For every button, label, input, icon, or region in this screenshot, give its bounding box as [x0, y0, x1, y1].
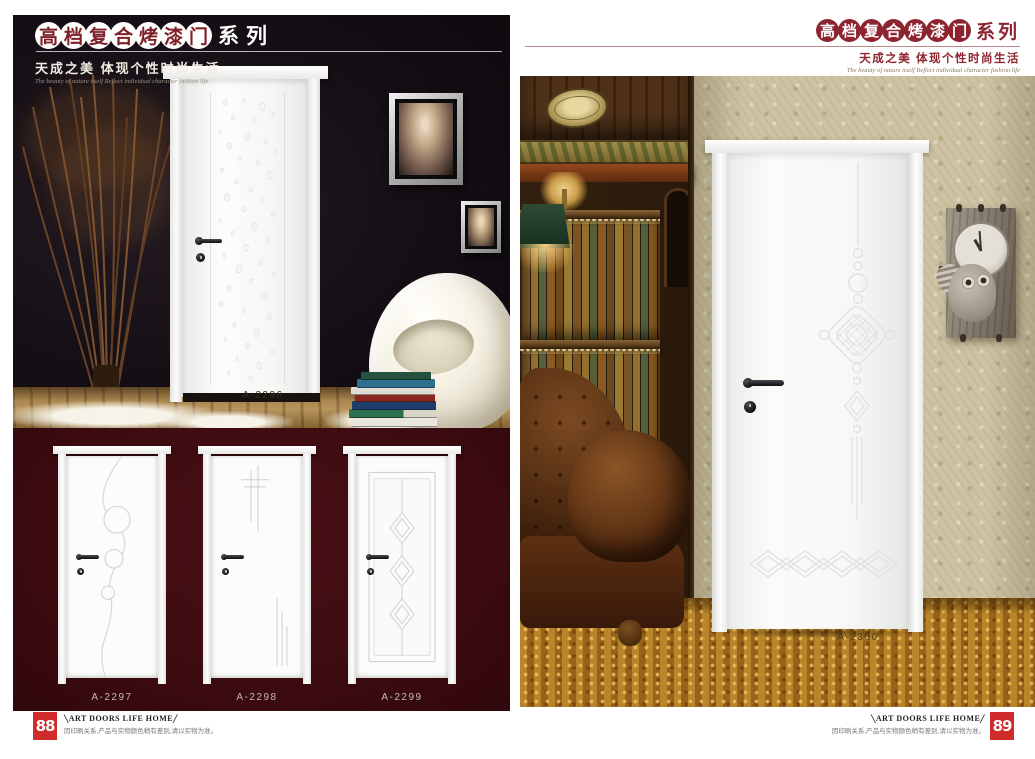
right-room-photo: A-2300 [520, 76, 1035, 707]
book [352, 401, 436, 410]
page-number-left: 88 [33, 712, 57, 740]
door-lock [744, 401, 756, 413]
door-lock [367, 568, 374, 575]
door-frame-jamb-right [303, 454, 311, 684]
door-design-a2300 [727, 153, 908, 629]
door-a2296 [182, 79, 308, 397]
right-series-title: 高 档 复 合 烤 漆 门 系列 [817, 17, 1020, 44]
door-frame-jamb-right [908, 153, 923, 632]
carved-frieze [520, 140, 694, 164]
door-design-a2296 [211, 93, 284, 383]
title-char-circle: 烤 [904, 19, 927, 42]
door-leaf [211, 456, 303, 678]
footer-right-text: ╲ART DOORS LIFE HOME╱ 因印刷关系,产品与实物颜色稍有差别,… [832, 714, 985, 735]
fur-rug [163, 411, 293, 428]
door-frame-jamb-left [170, 79, 182, 402]
book [361, 372, 431, 380]
series-tagline: 天成之美 体现个性时尚生活 [859, 50, 1020, 66]
book [349, 409, 437, 418]
door-design-a2297 [66, 456, 158, 678]
owl-figurine [948, 264, 996, 322]
door-handle-lever [224, 555, 244, 559]
door-handle-lever [79, 555, 99, 559]
dried-branches-decoration [15, 67, 183, 425]
brand-right-mark: ╱ [173, 715, 178, 723]
door-frame-jamb-left [712, 153, 727, 632]
title-char-circle: 复 [85, 22, 112, 49]
series-tagline-english: The beauty of nature itself Reflect indi… [847, 67, 1020, 74]
left-room-photo: 高 档 复 合 烤 漆 门 系列 天成之美 体现个性时尚生活 The beaut… [13, 15, 510, 428]
series-tagline: 天成之美 体现个性时尚生活 [35, 58, 274, 77]
door-lock [222, 568, 229, 575]
title-char-circle: 高 [35, 22, 62, 49]
clock-knob [956, 204, 962, 212]
door-frame-jamb-left [58, 454, 66, 684]
title-char-circle: 漆 [926, 19, 949, 42]
title-char-circle: 门 [185, 22, 212, 49]
door-carved-panel [210, 93, 285, 383]
title-char-circle: 合 [882, 19, 905, 42]
owl-eye [962, 276, 975, 289]
book-stack [349, 367, 441, 427]
showcase-door-a2299: A-2299 [348, 446, 456, 684]
title-char-circle: 合 [110, 22, 137, 49]
door-design-a2298 [211, 456, 303, 678]
owl-body [948, 264, 996, 322]
title-char-circle: 烤 [135, 22, 162, 49]
title-char-circle: 档 [60, 22, 87, 49]
owl-wall-clock [946, 208, 1016, 338]
page-number-right: 89 [990, 712, 1014, 740]
brand-name: ART DOORS LIFE HOME [69, 714, 173, 723]
armchair-foot [618, 620, 642, 646]
door-model-label: A-2298 [203, 692, 311, 703]
title-char-circle: 复 [860, 19, 883, 42]
door-frame-lintel [343, 446, 461, 454]
clock-knob [960, 334, 966, 342]
shelf-scallop-trim [520, 349, 660, 353]
title-char-circle: 档 [838, 19, 861, 42]
series-tagline-english: The beauty of nature itself Reflect indi… [35, 78, 274, 85]
showcase-door-a2298: A-2298 [203, 446, 311, 684]
book [351, 387, 434, 395]
print-disclaimer: 因印刷关系,产品与实物颜色稍有差别,请以实物为准。 [64, 725, 217, 735]
brand-right-mark: ╱ [980, 715, 985, 723]
left-series-header: 高 档 复 合 烤 漆 门 系列 天成之美 体现个性时尚生活 The beaut… [35, 20, 274, 85]
brand-line: ╲ART DOORS LIFE HOME╱ [64, 714, 217, 723]
door-frame-jamb-right [448, 454, 456, 684]
showcase-door-a2297: A-2297 [58, 446, 166, 684]
title-char-circle: 漆 [160, 22, 187, 49]
door-lock [196, 253, 205, 262]
clock-knob [996, 334, 1002, 342]
left-series-title: 高 档 复 合 烤 漆 门 系列 [35, 20, 274, 50]
brand-line: ╲ART DOORS LIFE HOME╱ [832, 714, 985, 723]
brand-name: ART DOORS LIFE HOME [876, 714, 980, 723]
footer-left-text: ╲ART DOORS LIFE HOME╱ 因印刷关系,产品与实物颜色稍有差别,… [64, 714, 217, 735]
door-handle-lever [199, 239, 222, 243]
wall-photo-frame-large [389, 93, 463, 185]
door-frame-lintel [705, 140, 929, 153]
shelf-board [520, 340, 660, 349]
door-frame-jamb-right [158, 454, 166, 684]
portrait-photo [468, 208, 494, 246]
door-frame-lintel [198, 446, 316, 454]
door-leaf [66, 456, 158, 678]
door-leaf [356, 456, 448, 678]
door-frame-lintel [53, 446, 171, 454]
right-series-header: 高 档 复 合 烤 漆 门 系列 天成之美 体现个性时尚生活 The beaut… [817, 17, 1020, 74]
door-handle-lever [748, 380, 784, 386]
door-model-label: A-2296 [203, 390, 323, 401]
clock-knob [978, 204, 984, 212]
wall-photo-frame-small [461, 201, 501, 253]
door-handle-lever [369, 555, 389, 559]
door-model-label: A-2299 [348, 692, 456, 703]
door-a2300 [727, 153, 908, 629]
book [355, 394, 435, 402]
book [351, 417, 437, 427]
door-model-label: A-2300 [798, 632, 918, 643]
book [357, 379, 435, 388]
door-design-a2299 [356, 456, 448, 678]
door-model-label: A-2297 [58, 692, 166, 703]
title-suffix: 系列 [218, 20, 274, 50]
lamp-glow [520, 244, 574, 272]
armchair-arm-roll [568, 430, 690, 562]
door-frame-jamb-left [348, 454, 356, 684]
title-suffix: 系列 [976, 17, 1020, 44]
door-frame-jamb-right [308, 79, 320, 402]
door-frame-jamb-left [203, 454, 211, 684]
leather-armchair [520, 368, 692, 654]
door-lock [77, 568, 84, 575]
green-lamp-shade [520, 204, 570, 248]
owl-eye [977, 274, 990, 287]
portrait-photo [399, 103, 453, 175]
door-showcase-panel: A-2297 A-2298 [13, 428, 510, 711]
catalog-spread: 高 档 复 合 烤 漆 门 系列 天成之美 体现个性时尚生活 The beaut… [0, 0, 1035, 759]
clock-knob [1000, 204, 1006, 212]
title-char-circle: 门 [948, 19, 971, 42]
title-char-circle: 高 [816, 19, 839, 42]
print-disclaimer: 因印刷关系,产品与实物颜色稍有差别,请以实物为准。 [832, 725, 985, 735]
